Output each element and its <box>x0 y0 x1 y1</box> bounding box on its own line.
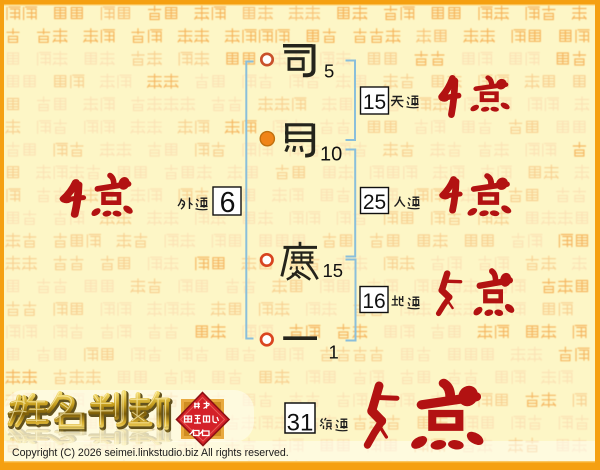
svg-text:1: 1 <box>329 342 339 363</box>
svg-text:25: 25 <box>363 191 386 214</box>
svg-text:5: 5 <box>324 61 334 82</box>
svg-text:10: 10 <box>320 143 342 165</box>
svg-text:Copyright (C) 2026 seimei.link: Copyright (C) 2026 seimei.linkstudio.biz… <box>12 447 289 459</box>
svg-text:15: 15 <box>323 260 344 281</box>
svg-text:31: 31 <box>287 409 314 436</box>
svg-text:6: 6 <box>220 187 236 219</box>
svg-text:16: 16 <box>362 290 385 313</box>
svg-text:15: 15 <box>363 91 386 114</box>
